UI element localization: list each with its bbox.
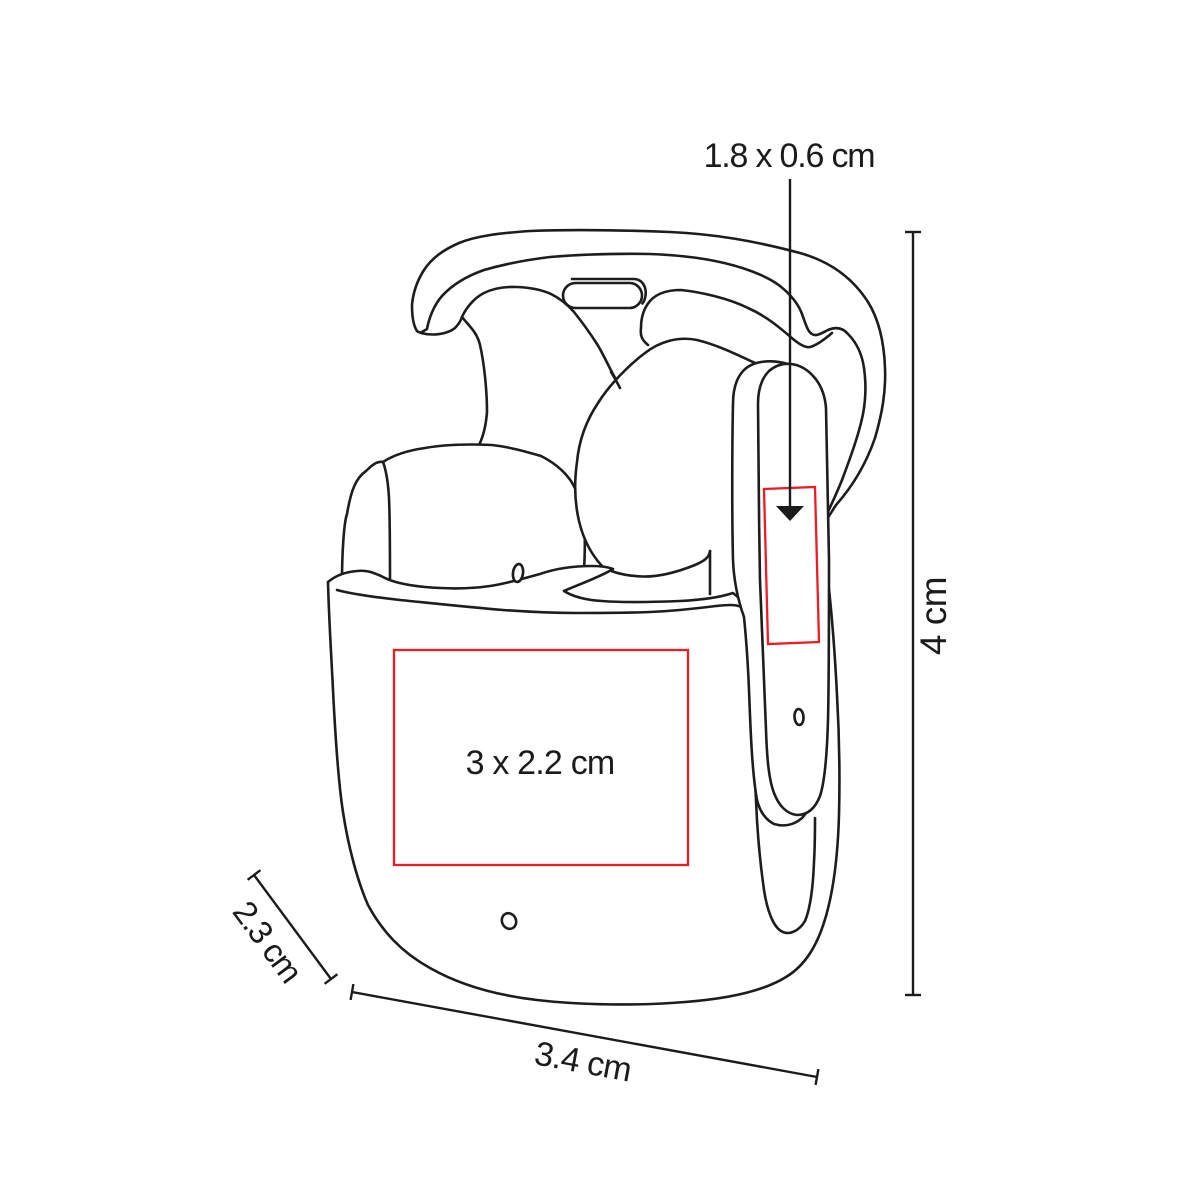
- svg-text:4 cm: 4 cm: [913, 577, 954, 655]
- svg-text:1.8 x 0.6 cm: 1.8 x 0.6 cm: [704, 137, 875, 175]
- svg-text:3 x 2.2 cm: 3 x 2.2 cm: [466, 744, 615, 782]
- svg-text:2.3 cm: 2.3 cm: [226, 894, 310, 989]
- svg-text:3.4 cm: 3.4 cm: [532, 1035, 634, 1090]
